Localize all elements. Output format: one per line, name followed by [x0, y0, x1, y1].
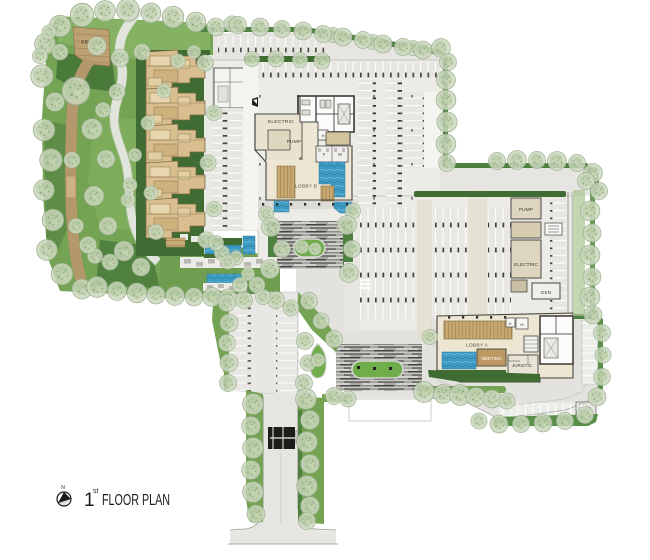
- svg-text:LOBBY B: LOBBY B: [295, 184, 317, 190]
- svg-text:FLOOR PLAN: FLOOR PLAN: [102, 492, 170, 509]
- svg-text:PUMP: PUMP: [519, 207, 533, 212]
- svg-text:M: M: [520, 323, 523, 327]
- svg-text:LOBBY A: LOBBY A: [466, 343, 489, 349]
- svg-text:H: H: [321, 134, 324, 139]
- svg-text:M: M: [338, 152, 342, 157]
- svg-text:PUMP: PUMP: [287, 139, 302, 145]
- svg-text:GEN: GEN: [541, 290, 552, 295]
- svg-text:H: H: [509, 322, 512, 326]
- svg-text:ELECTRIC: ELECTRIC: [514, 262, 538, 267]
- svg-text:N: N: [61, 485, 65, 491]
- svg-text:MEETING: MEETING: [481, 356, 502, 361]
- svg-text:JURISTIC: JURISTIC: [512, 363, 532, 368]
- svg-text:ELECTRIC: ELECTRIC: [268, 119, 294, 125]
- svg-text:F: F: [323, 152, 326, 157]
- svg-text:st: st: [93, 488, 99, 495]
